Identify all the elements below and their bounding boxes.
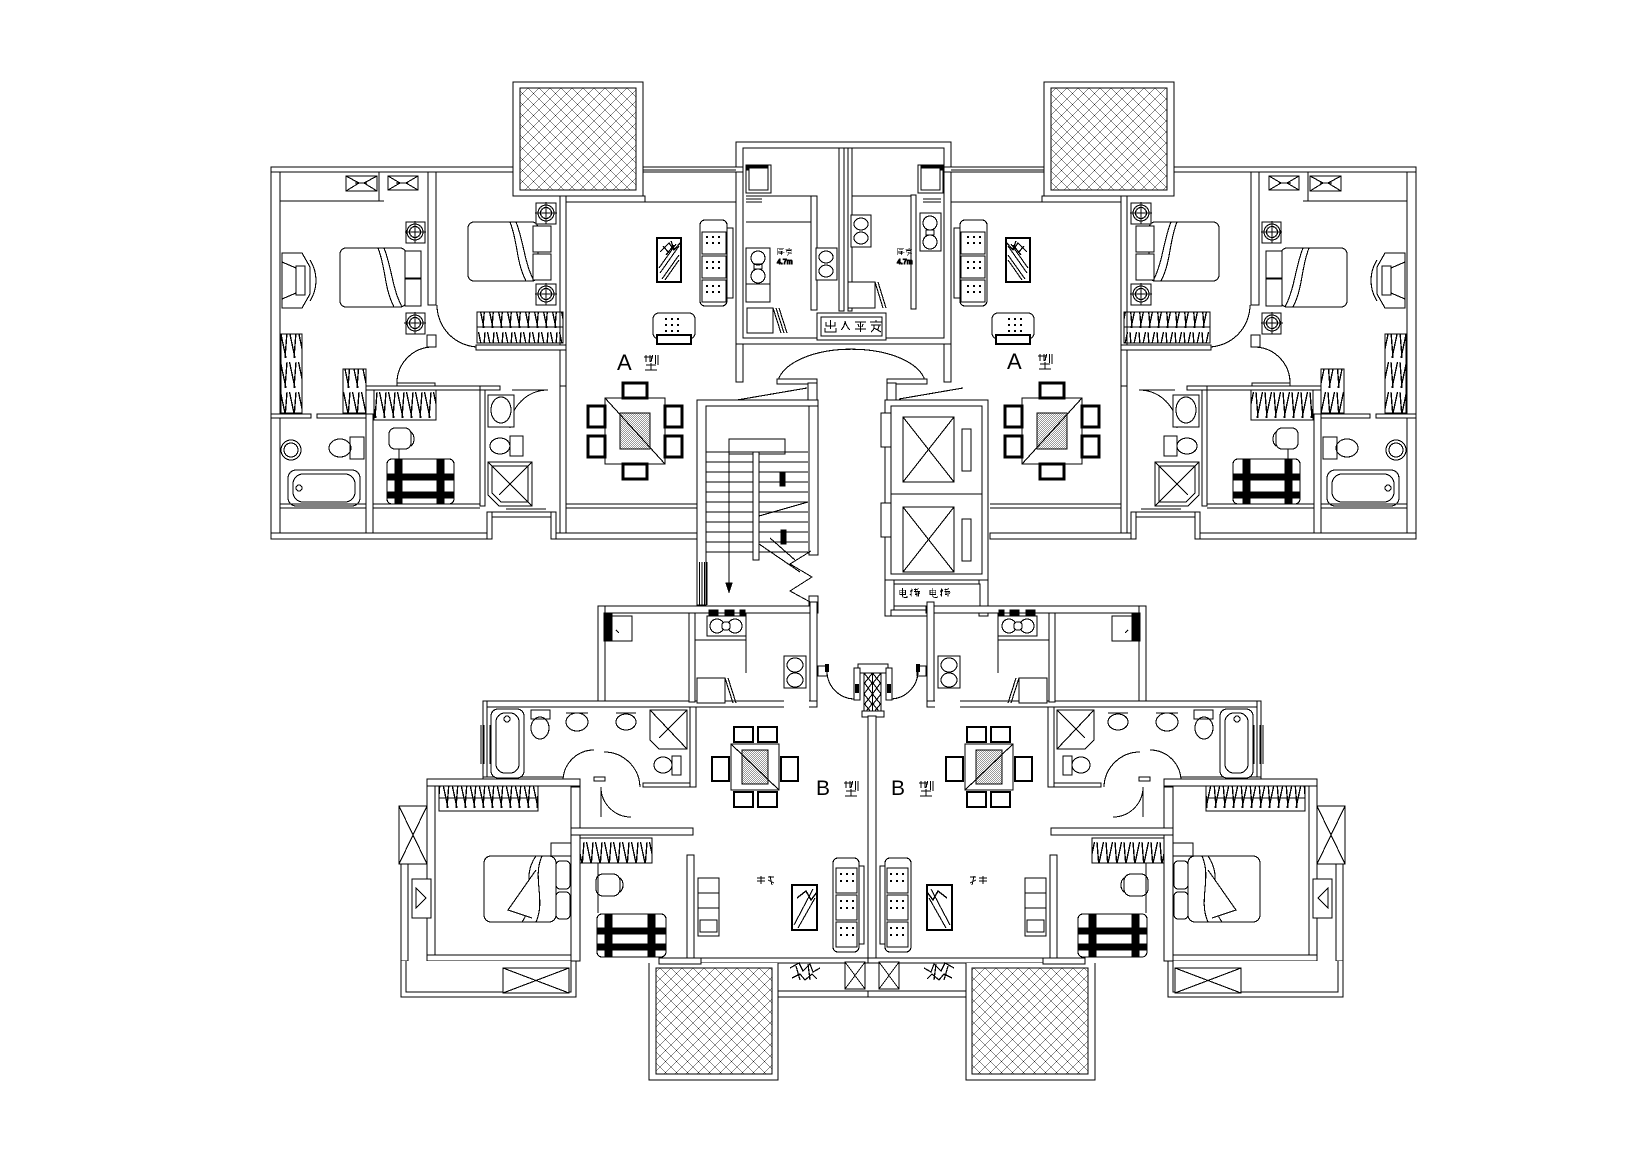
svg-text:4.7m: 4.7m [777,259,793,266]
svg-text:B: B [891,777,905,800]
svg-text:A: A [617,350,632,375]
svg-text:4.7m: 4.7m [897,259,913,266]
svg-text:B: B [816,777,830,800]
svg-text:A: A [1007,349,1022,374]
